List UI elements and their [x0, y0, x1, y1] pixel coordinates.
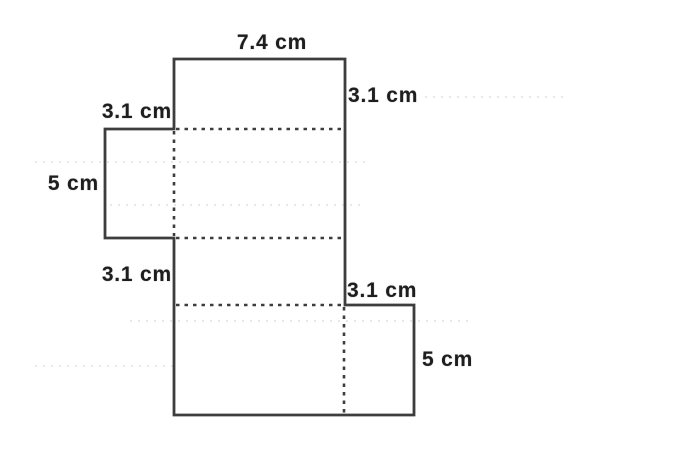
- label-top-face-height: 3.1 cm: [348, 84, 418, 108]
- fold-lines: [174, 129, 345, 413]
- prism-net-diagram: 7.4 cm 3.1 cm 3.1 cm 5 cm 3.1 cm 3.1 cm …: [0, 0, 688, 464]
- label-right-flap-width: 3.1 cm: [347, 279, 417, 303]
- label-left-flap-height: 5 cm: [48, 172, 99, 196]
- faint-rule-lines: [35, 97, 565, 366]
- net-drawing: [0, 0, 688, 464]
- label-top-width: 7.4 cm: [237, 31, 307, 55]
- label-bottom-face-height: 3.1 cm: [102, 263, 172, 287]
- label-right-flap-height: 5 cm: [422, 348, 473, 372]
- label-left-flap-width: 3.1 cm: [102, 100, 172, 124]
